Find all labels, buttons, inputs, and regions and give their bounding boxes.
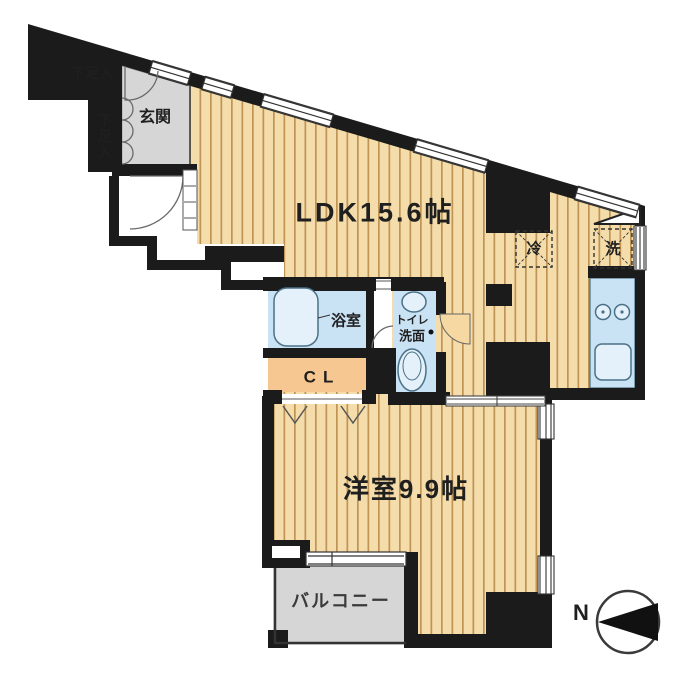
label-closet: CL (304, 369, 341, 386)
label-washroom: 洗面 (399, 330, 425, 343)
bathtub-icon (274, 288, 318, 346)
washroom-corridor (374, 291, 392, 350)
door-knob-dot (429, 330, 434, 335)
washroom-entry-gap (376, 279, 391, 291)
label-balcony: バルコニー (291, 592, 391, 610)
label-bathroom: 浴室 (331, 314, 361, 329)
western-room-window-upper (538, 404, 554, 439)
label-entrance: 玄関 (139, 110, 171, 126)
label-western-room: 洋室9.9帖 (343, 476, 469, 502)
label-shoe-cabinet-upper: 下足入 (71, 66, 113, 80)
kitchen-window (634, 226, 646, 270)
toilet-icon (398, 349, 426, 391)
label-refrigerator: 冷 (526, 242, 541, 257)
washbasin-icon (402, 292, 426, 312)
western-room-window-lower (538, 556, 554, 594)
compass-icon (597, 591, 659, 653)
center-pillar (486, 342, 550, 398)
label-washer: 洗 (605, 242, 620, 257)
floor-plan-drawing (0, 0, 690, 679)
north-label: N (573, 602, 589, 624)
label-ldk: LDK15.6帖 (295, 200, 454, 227)
western-room-sliding-door (446, 396, 545, 406)
hall-door-panel (183, 170, 197, 230)
label-shoe-cabinet-lower: 下足入 (98, 113, 112, 161)
kitchen-sink-icon (595, 344, 631, 380)
label-toilet: トイレ (396, 316, 429, 327)
balcony-sliding-door (306, 552, 406, 566)
floor-plan: LDK15.6帖 洋室9.9帖 玄関 浴室 トイレ 洗面 CL バルコニー 下足… (0, 0, 690, 679)
